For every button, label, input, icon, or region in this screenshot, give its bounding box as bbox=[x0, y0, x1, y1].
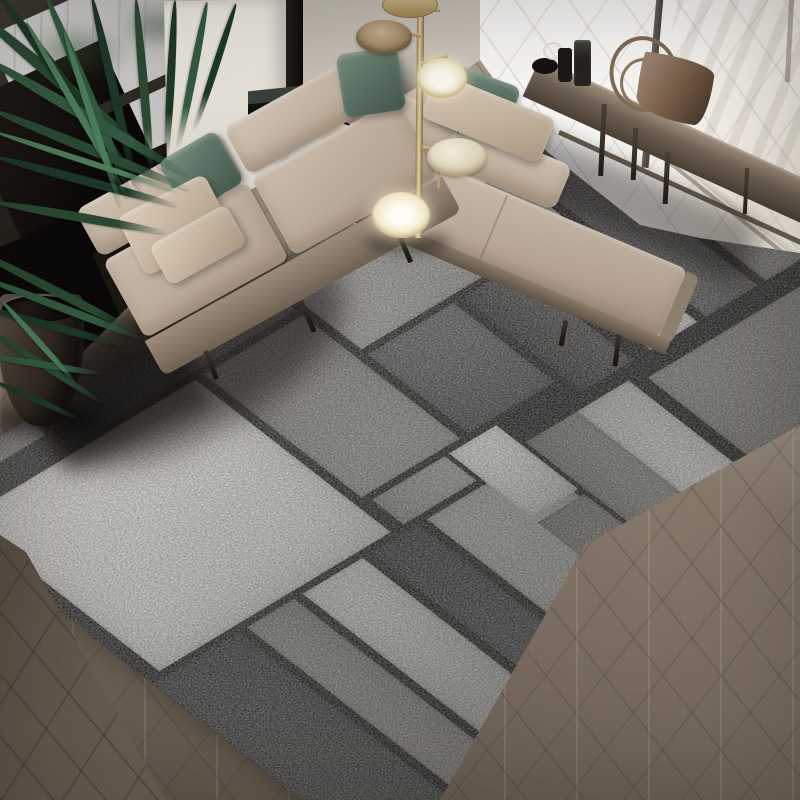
dark-vase bbox=[574, 40, 591, 86]
lamp-glowing-disc bbox=[417, 58, 467, 98]
green-pillow bbox=[335, 46, 406, 119]
lamp-tray-cream bbox=[427, 138, 487, 176]
lamp-glowing-base-disc bbox=[372, 192, 430, 238]
lamp-tray-brass bbox=[356, 20, 412, 54]
dark-vase bbox=[558, 48, 572, 82]
black-bowl bbox=[532, 58, 558, 74]
living-room-photo bbox=[0, 0, 800, 800]
